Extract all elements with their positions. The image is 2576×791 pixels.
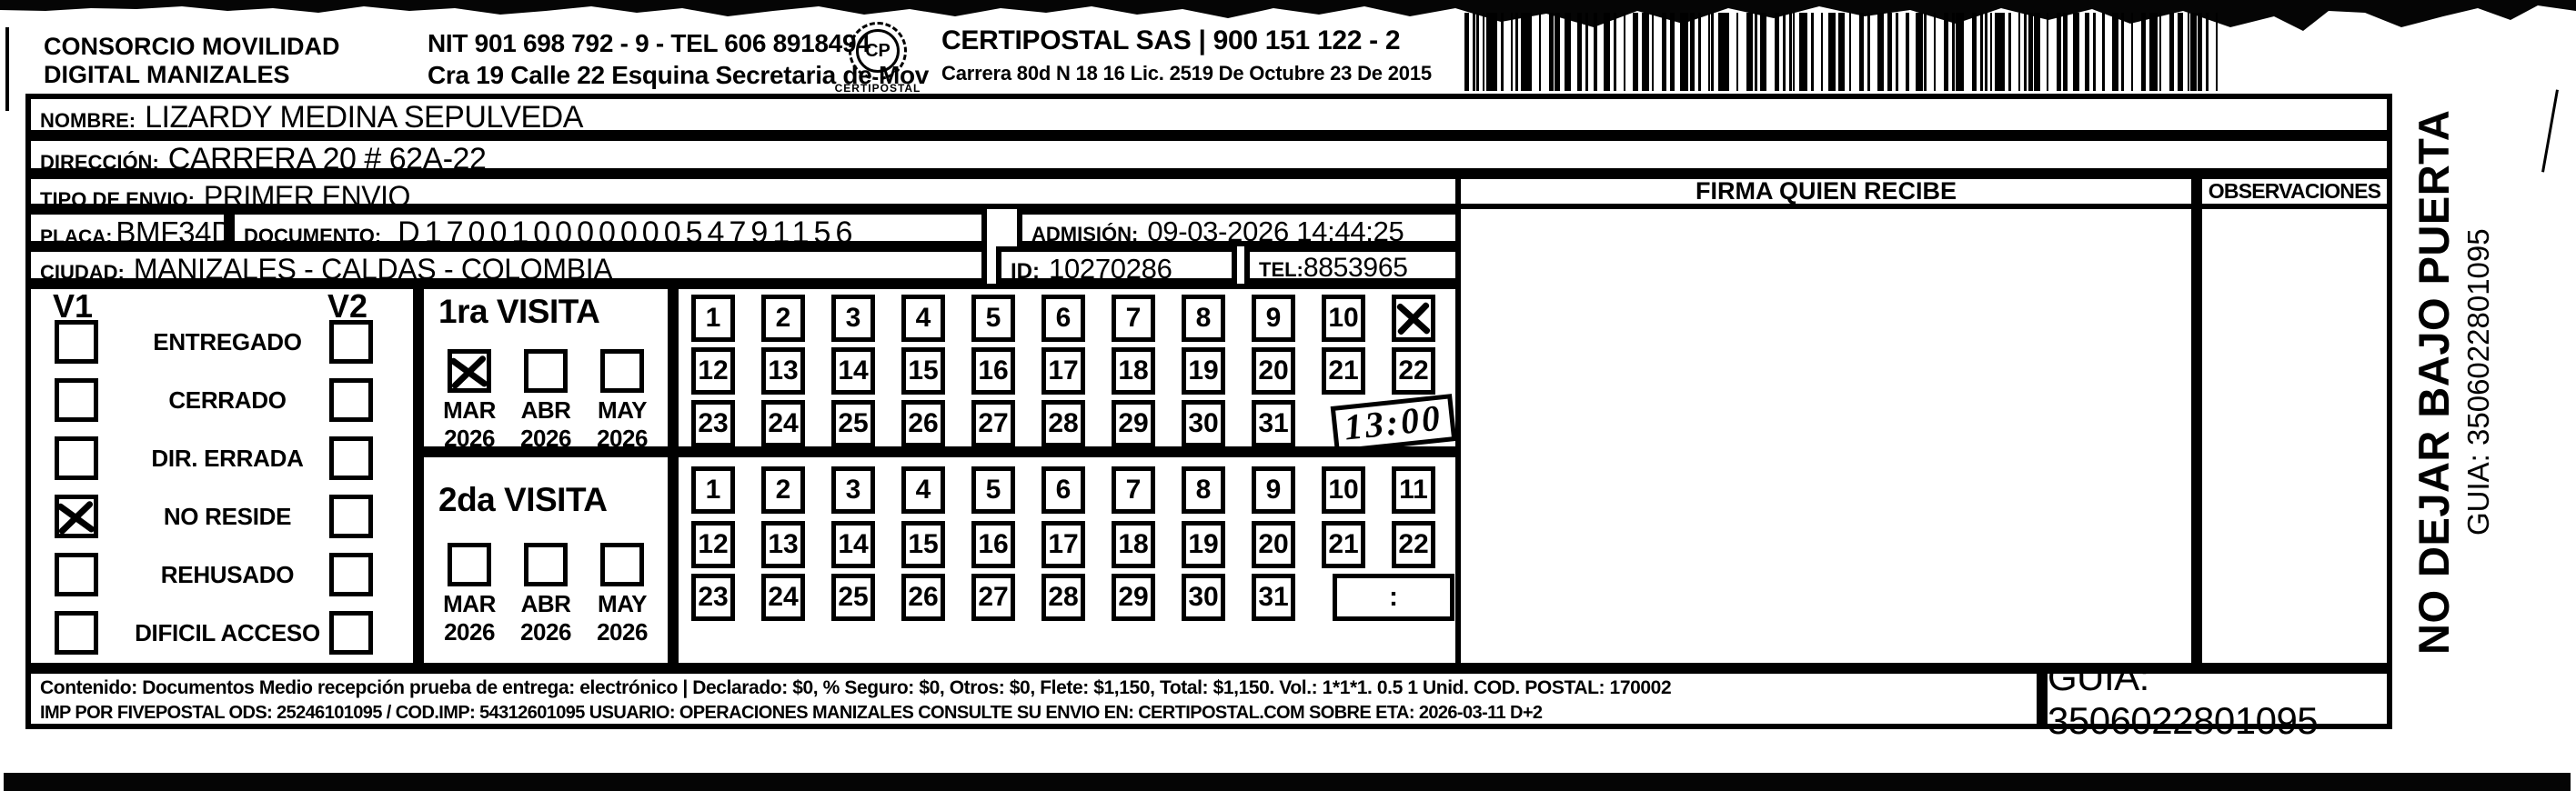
day-checkbox-visit1-27[interactable]: 27 [971,400,1015,447]
day-checkbox-visit2-13[interactable]: 13 [761,521,805,568]
firma-header: FIRMA QUIEN RECIBE [1455,174,2197,209]
month-year-label: 2026 [444,618,495,646]
ciudad-label: CIUDAD: [40,261,125,284]
checkbox-v1-cerrado[interactable] [55,378,98,422]
day-checkbox-visit1-4[interactable]: 4 [901,295,945,342]
day-checkbox-visit1-7[interactable]: 7 [1112,295,1155,342]
visit2-days-row1: 1234567891011 [691,466,1435,514]
visit1-months: MAR2026ABR2026MAY2026 [431,349,660,453]
logo-caption: CERTIPOSTAL [819,82,937,95]
month-checkbox-visit1-mar[interactable] [448,349,491,393]
visit1-month-panel: 1ra VISITA MAR2026ABR2026MAY2026 [418,284,673,452]
status-row-cerrado: CERRADO [31,378,413,422]
month-option-visit2-abr: ABR2026 [508,543,584,646]
day-checkbox-visit2-10[interactable]: 10 [1322,466,1365,514]
id-value: 10270286 [1049,253,1172,284]
documento-cell: DOCUMENTO: D17001000000054791156 [229,209,987,246]
tel-cell: TEL: 8853965 [1244,246,1461,284]
visit1-days-row2: 1213141516171819202122 [691,347,1435,395]
day-checkbox-visit1-5[interactable]: 5 [971,295,1015,342]
visit2-days-row3: 232425262728293031: [691,574,1454,621]
status-label-dir-errada: DIR. ERRADA [131,436,324,480]
day-checkbox-visit1-19[interactable]: 19 [1182,347,1225,395]
placa-label: PLACA: [40,226,112,246]
certipostal-logo-icon: CP CERTIPOSTAL [819,22,937,98]
month-option-visit1-mar: MAR2026 [431,349,508,453]
scan-bottom-edge [4,773,2571,791]
day-checkbox-visit2-25[interactable]: 25 [831,574,875,621]
month-checkbox-visit1-may[interactable] [600,349,644,393]
day-checkbox-visit2-9[interactable]: 9 [1252,466,1295,514]
direccion-row: DIRECCIÓN: CARRERA 20 # 62A-22 [25,135,2392,174]
day-checkbox-visit1-3[interactable]: 3 [831,295,875,342]
day-checkbox-visit1-11[interactable] [1392,295,1435,342]
documento-value: D17001000000054791156 [397,215,857,246]
visit2-month-panel: 2da VISITA MAR2026ABR2026MAY2026 [418,452,673,668]
day-checkbox-visit1-20[interactable]: 20 [1252,347,1295,395]
sender-company-line1: CONSORCIO MOVILIDAD [44,33,340,61]
day-checkbox-visit1-31[interactable]: 31 [1252,400,1295,447]
checkbox-v1-rehusado[interactable] [55,553,98,596]
day-checkbox-visit2-8[interactable]: 8 [1182,466,1225,514]
scan-left-edge-mark [5,27,9,111]
day-checkbox-visit2-31[interactable]: 31 [1252,574,1295,621]
logo-outer-circle: CP [849,22,907,80]
time-box-visit1[interactable]: 13:00 [1331,394,1457,454]
direccion-value: CARRERA 20 # 62A-22 [168,142,487,174]
month-year-label: 2026 [520,425,571,453]
month-label: MAY [598,590,647,618]
status-label-entregado: ENTREGADO [131,320,324,364]
day-checkbox-visit2-30[interactable]: 30 [1182,574,1225,621]
documento-label: DOCUMENTO: [244,225,381,246]
checkbox-v2-dificil-acceso[interactable] [329,611,373,655]
visit-status-panel: V1 V2 ENTREGADOCERRADODIR. ERRADANO RESI… [25,284,418,668]
day-checkbox-visit2-6[interactable]: 6 [1041,466,1085,514]
status-row-dificil-acceso: DIFICIL ACCESO [31,611,413,655]
day-checkbox-visit1-10[interactable]: 10 [1322,295,1365,342]
day-checkbox-visit2-4[interactable]: 4 [901,466,945,514]
status-row-rehusado: REHUSADO [31,553,413,596]
shipment-import-line: IMP POR FIVEPOSTAL ODS: 25246101095 / CO… [40,703,1542,724]
checkbox-v2-entregado[interactable] [329,320,373,364]
visit1-title: 1ra VISITA [438,293,599,331]
day-checkbox-visit1-12[interactable]: 12 [691,347,735,395]
day-checkbox-visit2-29[interactable]: 29 [1112,574,1155,621]
nombre-value: LIZARDY MEDINA SEPULVEDA [145,100,583,135]
status-row-dir-errada: DIR. ERRADA [31,436,413,480]
day-checkbox-visit2-1[interactable]: 1 [691,466,735,514]
day-checkbox-visit1-6[interactable]: 6 [1041,295,1085,342]
day-checkbox-visit1-23[interactable]: 23 [691,400,735,447]
checkbox-v2-rehusado[interactable] [329,553,373,596]
day-checkbox-visit1-26[interactable]: 26 [901,400,945,447]
day-checkbox-visit2-21[interactable]: 21 [1322,521,1365,568]
day-checkbox-visit2-7[interactable]: 7 [1112,466,1155,514]
day-checkbox-visit2-5[interactable]: 5 [971,466,1015,514]
placa-cell: PLACA: BMF34D [25,209,229,246]
month-option-visit1-may: MAY2026 [584,349,660,453]
guia-number-box: GUIA: 3506022801095 [2042,668,2392,729]
status-label-cerrado: CERRADO [131,378,324,422]
checkbox-v1-dificil-acceso[interactable] [55,611,98,655]
day-checkbox-visit2-3[interactable]: 3 [831,466,875,514]
day-checkbox-visit1-2[interactable]: 2 [761,295,805,342]
observaciones-column [2197,174,2392,668]
visit2-days-row2: 1213141516171819202122 [691,521,1435,568]
status-row-no-reside: NO RESIDE [31,495,413,538]
tipo-envio-label: TIPO DE ENVIO: [40,188,195,209]
month-year-label: 2026 [444,425,495,453]
day-checkbox-visit1-28[interactable]: 28 [1041,400,1085,447]
day-checkbox-visit2-11[interactable]: 11 [1392,466,1435,514]
nombre-row: NOMBRE: LIZARDY MEDINA SEPULVEDA [25,94,2392,135]
carrier-name-nit: CERTIPOSTAL SAS | 900 151 122 - 2 [941,25,1432,56]
day-checkbox-visit2-28[interactable]: 28 [1041,574,1085,621]
checkbox-v2-no-reside[interactable] [329,495,373,538]
month-checkbox-visit2-may[interactable] [600,543,644,586]
tipo-envio-value: PRIMER ENVIO [204,180,410,209]
checkbox-v1-entregado[interactable] [55,320,98,364]
carrier-company-info: CERTIPOSTAL SAS | 900 151 122 - 2 Carrer… [941,25,1432,85]
day-checkbox-visit2-23[interactable]: 23 [691,574,735,621]
month-label: ABR [521,590,571,618]
day-checkbox-visit1-15[interactable]: 15 [901,347,945,395]
day-checkbox-visit2-18[interactable]: 18 [1112,521,1155,568]
checkbox-v1-dir-errada[interactable] [55,436,98,480]
month-year-label: 2026 [597,425,648,453]
id-label: ID: [1011,259,1040,284]
time-box-visit2[interactable]: : [1333,574,1454,621]
month-label: MAR [443,590,496,618]
firma-column [1455,174,2197,668]
day-checkbox-visit1-14[interactable]: 14 [831,347,875,395]
day-checkbox-visit1-18[interactable]: 18 [1112,347,1155,395]
day-checkbox-visit2-20[interactable]: 20 [1252,521,1295,568]
day-checkbox-visit2-19[interactable]: 19 [1182,521,1225,568]
day-checkbox-visit2-16[interactable]: 16 [971,521,1015,568]
month-checkbox-visit2-abr[interactable] [524,543,568,586]
month-label: MAR [443,396,496,425]
barcode [1464,13,2218,91]
sender-company-name: CONSORCIO MOVILIDAD DIGITAL MANIZALES [44,33,340,89]
day-checkbox-visit1-8[interactable]: 8 [1182,295,1225,342]
month-option-visit2-may: MAY2026 [584,543,660,646]
admision-value: 09-03-2026 14:44:25 [1147,215,1404,246]
checkbox-v2-cerrado[interactable] [329,378,373,422]
tipo-envio-row: TIPO DE ENVIO: PRIMER ENVIO [25,174,1461,209]
month-option-visit1-abr: ABR2026 [508,349,584,453]
month-option-visit2-mar: MAR2026 [431,543,508,646]
direccion-label: DIRECCIÓN: [40,151,159,174]
day-checkbox-visit1-13[interactable]: 13 [761,347,805,395]
placa-value: BMF34D [116,215,229,246]
scan-right-edge-mark [2541,89,2559,172]
month-checkbox-visit1-abr[interactable] [524,349,568,393]
side-note-guia: GUIA: 3506022801095 [2461,123,2496,641]
day-checkbox-visit1-22[interactable]: 22 [1392,347,1435,395]
day-checkbox-visit2-22[interactable]: 22 [1392,521,1435,568]
visit2-day-grid: 1234567891011 1213141516171819202122 232… [673,452,1461,668]
day-checkbox-visit2-14[interactable]: 14 [831,521,875,568]
tel-value: 8853965 [1303,253,1408,284]
day-checkbox-visit2-24[interactable]: 24 [761,574,805,621]
visit1-days-row1: 12345678910 [691,295,1435,342]
side-note-warning: NO DEJAR BAJO PUERTA [2409,86,2459,677]
day-checkbox-visit1-25[interactable]: 25 [831,400,875,447]
admision-label: ADMISIÓN: [1031,223,1138,246]
carrier-address-license: Carrera 80d N 18 16 Lic. 2519 De Octubre… [941,62,1432,85]
day-checkbox-visit1-9[interactable]: 9 [1252,295,1295,342]
admision-cell: ADMISIÓN: 09-03-2026 14:44:25 [1017,209,1461,246]
status-label-rehusado: REHUSADO [131,553,324,596]
month-label: ABR [521,396,571,425]
day-checkbox-visit1-24[interactable]: 24 [761,400,805,447]
day-checkbox-visit1-30[interactable]: 30 [1182,400,1225,447]
day-checkbox-visit2-2[interactable]: 2 [761,466,805,514]
day-checkbox-visit2-17[interactable]: 17 [1041,521,1085,568]
visit2-title: 2da VISITA [438,481,608,519]
status-label-dificil-acceso: DIFICIL ACCESO [131,611,324,655]
day-checkbox-visit1-17[interactable]: 17 [1041,347,1085,395]
delivery-form-document: CONSORCIO MOVILIDAD DIGITAL MANIZALES NI… [0,0,2576,791]
ciudad-value: MANIZALES - CALDAS - COLOMBIA [134,253,613,284]
tel-label: TEL: [1259,258,1303,282]
month-year-label: 2026 [597,618,648,646]
nombre-label: NOMBRE: [40,109,136,133]
visit1-days-row3: 23242526272829303113:00 [691,400,1454,447]
day-checkbox-visit1-21[interactable]: 21 [1322,347,1365,395]
checkbox-v1-no-reside[interactable] [55,495,98,538]
month-label: MAY [598,396,647,425]
day-checkbox-visit2-27[interactable]: 27 [971,574,1015,621]
day-checkbox-visit2-15[interactable]: 15 [901,521,945,568]
shipment-details-cell: Contenido: Documentos Medio recepción pr… [25,668,2042,729]
sender-company-line2: DIGITAL MANIZALES [44,61,340,89]
day-checkbox-visit1-29[interactable]: 29 [1112,400,1155,447]
day-checkbox-visit2-26[interactable]: 26 [901,574,945,621]
logo-monogram: CP [856,29,900,73]
month-year-label: 2026 [520,618,571,646]
status-row-entregado: ENTREGADO [31,320,413,364]
status-label-no-reside: NO RESIDE [131,495,324,538]
checkbox-v2-dir-errada[interactable] [329,436,373,480]
visit1-day-grid: 12345678910 1213141516171819202122 23242… [673,284,1461,452]
visit2-months: MAR2026ABR2026MAY2026 [431,543,660,646]
shipment-contents-line: Contenido: Documentos Medio recepción pr… [40,677,1671,699]
ciudad-cell: CIUDAD: MANIZALES - CALDAS - COLOMBIA [25,246,987,284]
id-cell: ID: 10270286 [996,246,1237,284]
observaciones-header: OBSERVACIONES [2197,174,2392,209]
day-checkbox-visit2-12[interactable]: 12 [691,521,735,568]
month-checkbox-visit2-mar[interactable] [448,543,491,586]
day-checkbox-visit1-16[interactable]: 16 [971,347,1015,395]
day-checkbox-visit1-1[interactable]: 1 [691,295,735,342]
